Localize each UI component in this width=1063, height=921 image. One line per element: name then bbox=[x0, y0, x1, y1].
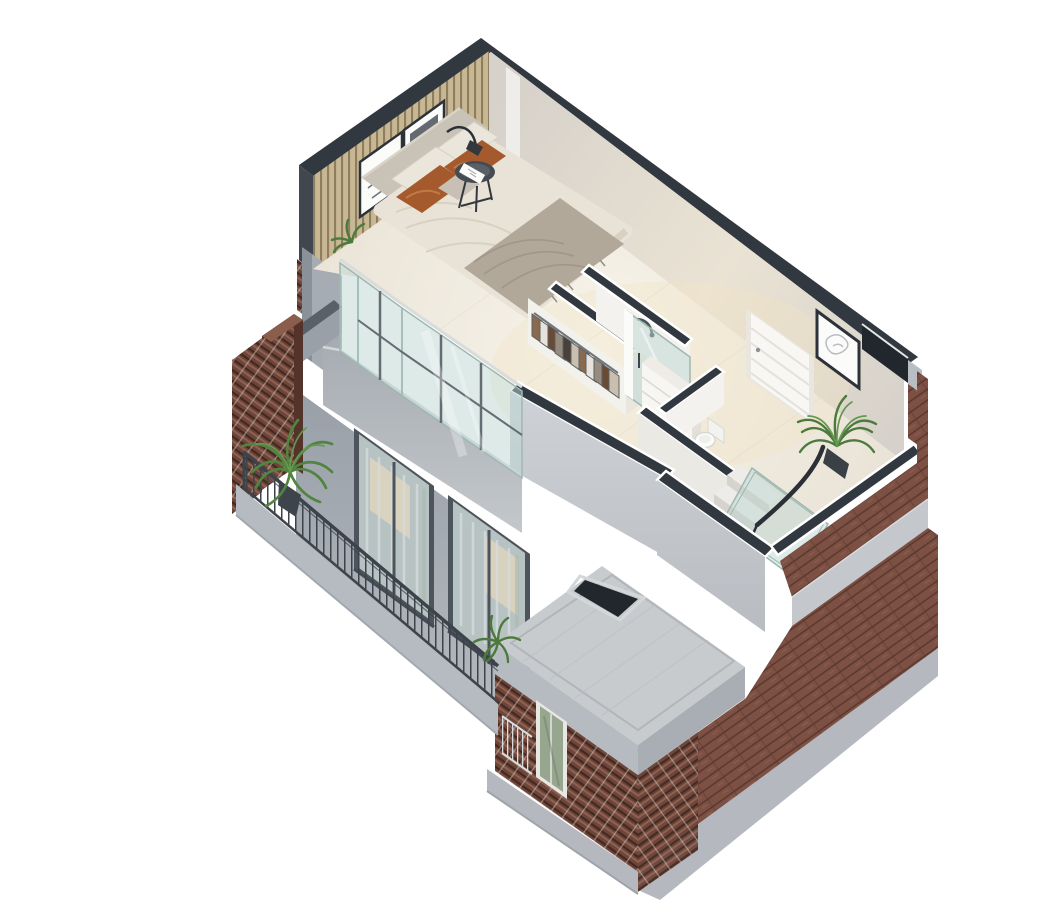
bay-glass-left bbox=[340, 263, 358, 364]
isometric-floorplan-render bbox=[40, 16, 1063, 905]
shower-door-stile bbox=[624, 308, 633, 400]
screen-side-face bbox=[294, 314, 303, 474]
toilet-seat bbox=[699, 435, 711, 443]
door-handle bbox=[756, 348, 760, 352]
floorplan-canvas bbox=[40, 16, 1063, 905]
